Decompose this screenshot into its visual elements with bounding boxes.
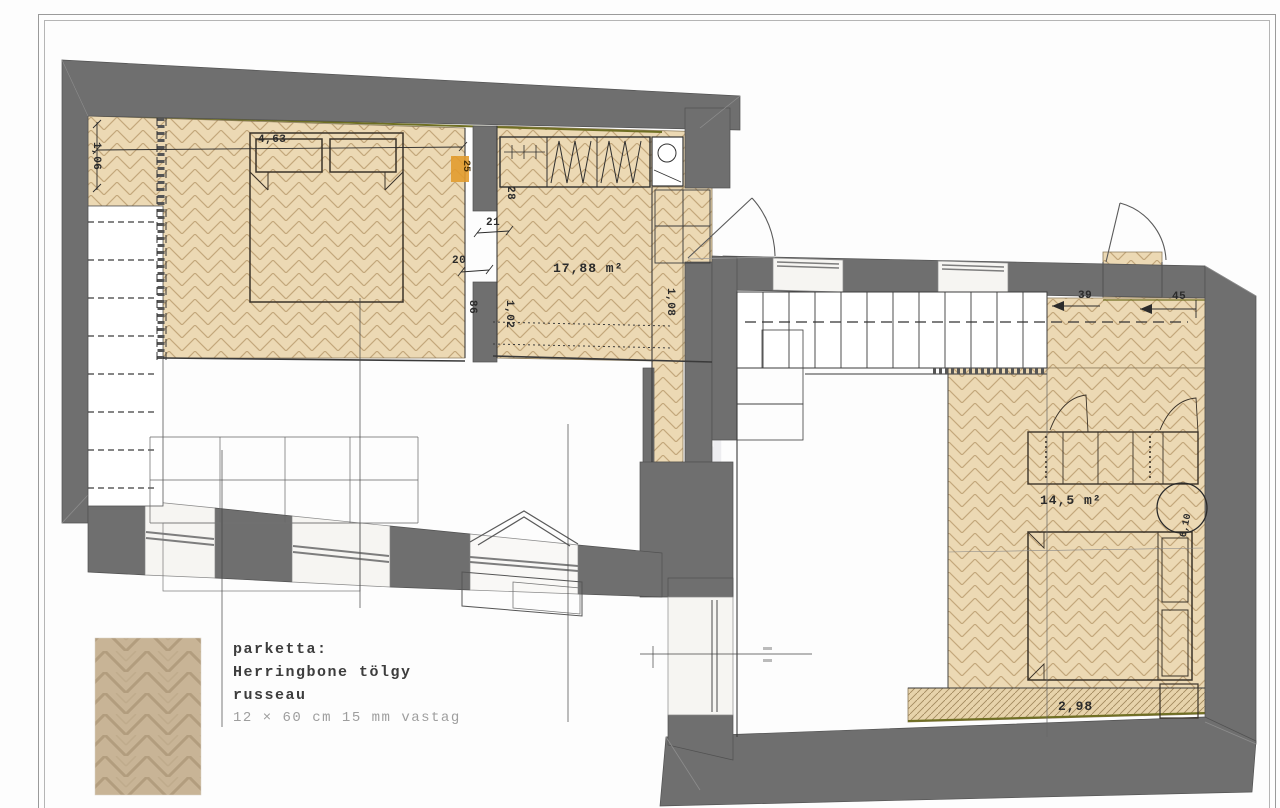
room-area-label-left: 17,88 m² [553,261,623,276]
dim-label-21: 21 [486,217,500,229]
dim-label-39: 39 [1078,290,1092,302]
wall-stub-1 [473,126,497,211]
dim-label-86: 86 [466,300,478,314]
wall-pier-c [390,526,470,590]
windows-bottom-left [145,501,582,616]
wall-pier-a [88,495,145,575]
wall-stub-washbasin [685,108,730,188]
dim-label-102: 1,02 [503,300,515,328]
legend-product-line1: Herringbone tölgy [233,664,412,681]
window-5 [668,597,733,715]
dim-label-28: 28 [504,186,516,200]
dim-label-45: 45 [1172,291,1186,303]
wall-left [62,60,88,523]
legend-specs: 12 × 60 cm 15 mm vastag [233,710,461,726]
dim-label-25: 25 [460,160,471,172]
legend-product-line2: russeau [233,687,307,704]
room-area-label-right: 14,5 m² [1040,493,1102,508]
wall-window-jamb-top [668,578,733,597]
wall-pier-b [215,508,292,582]
parquet-entry-right [1047,298,1205,368]
parquet-corridor [652,187,683,462]
floor-plan-drawing: N [0,0,1280,808]
dim-label-298: 2,98 [1058,699,1093,714]
dim-label-108: 1,08 [664,288,676,316]
wall-right-unit-right [1205,266,1256,744]
dim-label-106: 1,06 [90,142,102,170]
washbasin [652,137,683,186]
legend: parketta: Herringbone tölgy russeau 12 ×… [95,638,461,795]
floor-plan-page: N [0,0,1280,808]
wall-bottom-right-unit [660,717,1256,806]
parquet-swatch [95,638,201,795]
dim-label-20: 20 [452,255,466,267]
wall-pier-d [578,545,662,597]
highlighted-dimension: 25 [451,156,471,182]
legend-title: parketta: [233,641,328,658]
wall-right-unit-left-top [712,256,737,440]
dim-label-463: 4,63 [258,134,286,146]
